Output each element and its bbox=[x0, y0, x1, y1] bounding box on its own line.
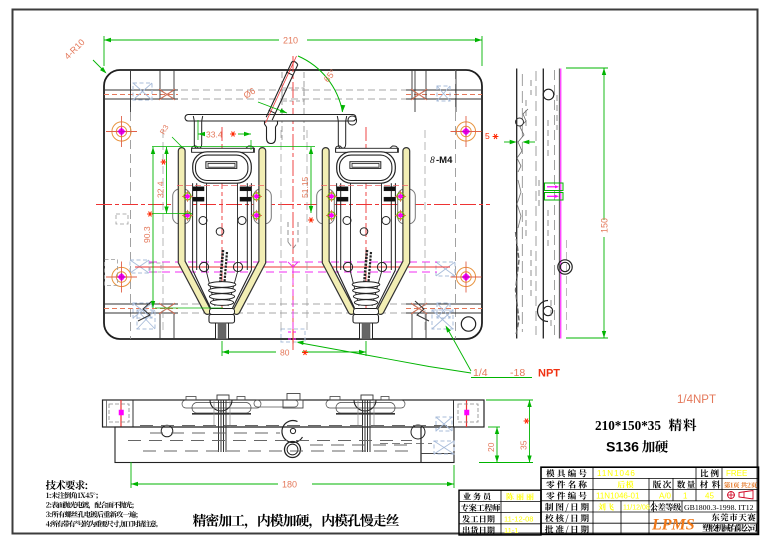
svg-text:45: 45 bbox=[705, 492, 714, 501]
svg-text:11N1046-01: 11N1046-01 bbox=[596, 492, 640, 501]
svg-text:80: 80 bbox=[280, 348, 290, 358]
svg-text:GB1800.3-1998. IT12: GB1800.3-1998. IT12 bbox=[684, 503, 754, 512]
svg-text:FREE: FREE bbox=[726, 469, 747, 478]
svg-text:11N1046: 11N1046 bbox=[597, 469, 636, 478]
svg-text:LPMS: LPMS bbox=[651, 517, 695, 534]
svg-text:32.4: 32.4 bbox=[156, 181, 166, 198]
svg-text:210: 210 bbox=[283, 36, 298, 46]
svg-text:11/12/08: 11/12/08 bbox=[623, 505, 650, 512]
svg-text:33.4: 33.4 bbox=[206, 130, 223, 140]
svg-text:210*150*35: 210*150*35 bbox=[595, 419, 661, 434]
svg-text:90.3: 90.3 bbox=[142, 226, 152, 243]
svg-text:51.15: 51.15 bbox=[300, 176, 310, 198]
svg-text:S136: S136 bbox=[606, 440, 640, 455]
svg-text:20: 20 bbox=[486, 442, 496, 452]
svg-text:1/4NPT: 1/4NPT bbox=[677, 394, 716, 406]
svg-text:180: 180 bbox=[282, 480, 297, 490]
svg-text:1: 1 bbox=[683, 492, 688, 501]
svg-text:NPT: NPT bbox=[538, 368, 560, 380]
svg-text:150: 150 bbox=[600, 218, 610, 233]
svg-text:A/0: A/0 bbox=[659, 492, 672, 501]
svg-text:11-12-08: 11-12-08 bbox=[504, 515, 533, 524]
svg-text:-M4: -M4 bbox=[436, 155, 453, 166]
svg-text:8: 8 bbox=[430, 156, 435, 166]
svg-text:35: 35 bbox=[519, 440, 529, 450]
svg-text:1/4: 1/4 bbox=[473, 367, 488, 379]
svg-text:-18: -18 bbox=[510, 367, 525, 379]
svg-text:11-1: 11-1 bbox=[504, 526, 518, 535]
svg-text:5: 5 bbox=[485, 131, 490, 141]
